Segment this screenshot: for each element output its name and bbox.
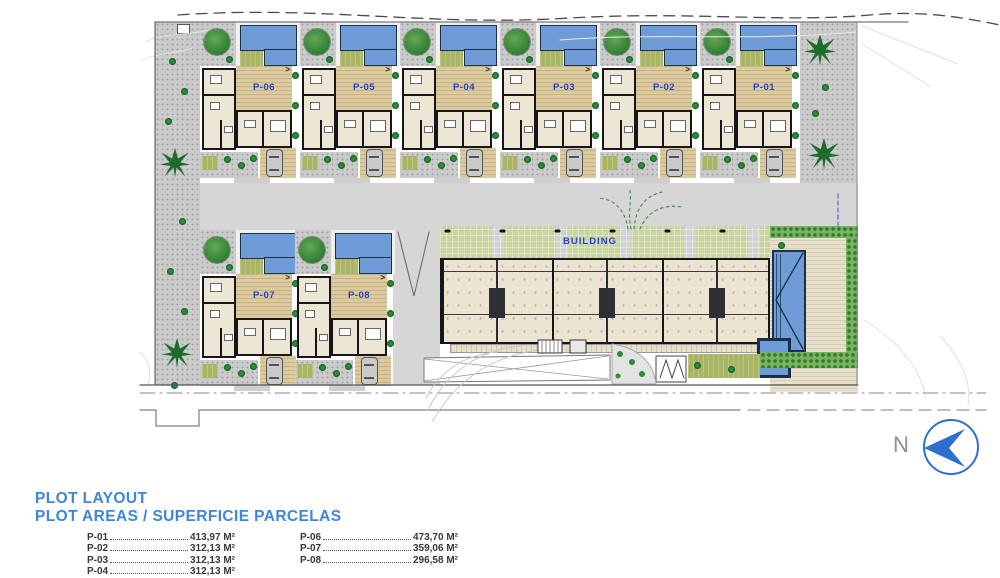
tree-icon: [204, 237, 230, 263]
furniture: [244, 328, 256, 336]
house-footprint: [702, 68, 736, 150]
interior-wall: [462, 112, 464, 146]
house-footprint: [402, 68, 436, 150]
plot-area: 312,13 M²: [190, 566, 235, 577]
car-rear-window: [369, 169, 379, 171]
lawn-patch: [540, 51, 563, 66]
house-bedroom-wing: [636, 110, 692, 148]
villa-back-garden: [500, 22, 536, 66]
plot-area: 473,70 M²: [413, 532, 458, 543]
bed: [670, 120, 686, 132]
shrub-icon: [387, 340, 394, 347]
shrub-icon: [392, 102, 399, 109]
shrub-icon: [624, 156, 631, 163]
shrub-icon: [738, 162, 745, 169]
car-icon: [666, 149, 683, 177]
shrub-icon: [319, 364, 326, 371]
lawn-patch: [402, 156, 418, 170]
side-shrub-column: [392, 66, 400, 152]
shrub-icon: [392, 132, 399, 139]
shrub-icon: [750, 155, 757, 162]
lawn-patch: [702, 156, 718, 170]
shrub-icon: [724, 156, 731, 163]
entrance-arrow-icon: >: [785, 65, 790, 74]
interior-wall: [220, 120, 222, 148]
leader-dots: [110, 573, 188, 574]
bed: [365, 328, 381, 340]
shrub-icon: [387, 280, 394, 287]
north-label: N: [893, 432, 909, 458]
car-rear-window: [669, 169, 679, 171]
shrub-icon: [392, 72, 399, 79]
legend-title: PLOT LAYOUT: [35, 490, 505, 508]
house-footprint: [602, 68, 636, 150]
entrance-walk: [434, 178, 470, 183]
villa-back-garden: [700, 22, 736, 66]
interior-wall: [620, 120, 622, 148]
villa-deck: P-07 >: [236, 274, 292, 318]
shrub-icon: [224, 364, 231, 371]
furniture: [224, 126, 233, 133]
side-shrub-column: [292, 66, 300, 152]
shrub-icon: [592, 72, 599, 79]
house-footprint: [202, 68, 236, 150]
villa-front-garden: [300, 152, 358, 178]
villa-deck: P-05 >: [336, 66, 392, 110]
legend-row: P-08296,58 M²: [300, 555, 458, 566]
car-icon: [366, 149, 383, 177]
lawn-patch: [302, 156, 318, 170]
shrub-icon: [726, 56, 733, 63]
interior-wall: [720, 120, 722, 148]
legend-row: P-04312,13 M²: [87, 566, 235, 577]
shrub-icon: [692, 102, 699, 109]
shrub-icon: [345, 363, 352, 370]
villa-pool: [340, 25, 397, 51]
interior-wall: [304, 94, 334, 96]
furniture: [724, 126, 733, 133]
plot-label: P-02: [636, 82, 692, 93]
villa-pool-lower: [664, 49, 697, 66]
car-windshield: [769, 156, 779, 158]
legend-column-1: P-01413,97 M² P-02312,13 M² P-03312,13 M…: [87, 532, 235, 578]
interior-wall: [204, 302, 234, 304]
villa-pool-lower: [364, 49, 397, 66]
villa-front-garden: [200, 152, 258, 178]
shrub-icon: [792, 72, 799, 79]
shrub-icon: [626, 56, 633, 63]
shrub-icon: [592, 132, 599, 139]
furniture: [710, 102, 720, 110]
bed: [370, 120, 386, 132]
interior-wall: [262, 320, 264, 354]
interior-wall: [762, 112, 764, 146]
tree-icon: [504, 29, 530, 55]
car-windshield: [569, 156, 579, 158]
furniture: [710, 75, 722, 84]
villa-pool: [740, 25, 797, 51]
villa-pool: [640, 25, 697, 51]
villa-plot: P-06 >: [200, 22, 300, 182]
plot-id: P-06: [300, 532, 321, 543]
villa-back-garden: [600, 22, 636, 66]
shrub-icon: [250, 155, 257, 162]
entrance-arrow-icon: >: [685, 65, 690, 74]
bed: [570, 120, 586, 132]
villa-front-garden: [400, 152, 458, 178]
furniture: [410, 75, 422, 84]
shrub-icon: [338, 162, 345, 169]
bed: [770, 120, 786, 132]
car-windshield: [364, 364, 374, 366]
shrub-icon: [292, 72, 299, 79]
shrub-icon: [692, 72, 699, 79]
car-windshield: [269, 156, 279, 158]
leader-dots: [323, 550, 411, 551]
leader-dots: [323, 562, 411, 563]
house-bedroom-wing: [736, 110, 792, 148]
interior-wall: [362, 112, 364, 146]
house-bedroom-wing: [536, 110, 592, 148]
interior-wall: [220, 328, 222, 356]
entrance-walk: [634, 178, 670, 183]
interior-wall: [262, 112, 264, 146]
shrub-icon: [226, 56, 233, 63]
interior-wall: [357, 320, 359, 354]
lawn-patch: [297, 364, 313, 378]
shrub-icon: [592, 102, 599, 109]
house-footprint: [297, 276, 331, 358]
villa-pool-lower: [264, 49, 297, 66]
plot-label: P-06: [236, 82, 292, 93]
furniture: [224, 334, 233, 341]
shrub-icon: [224, 156, 231, 163]
car-rear-window: [469, 169, 479, 171]
shrub-icon: [492, 132, 499, 139]
entrance-walk: [334, 178, 370, 183]
lawn-patch: [335, 259, 358, 274]
villa-pool-lower: [264, 257, 297, 274]
house-footprint: [302, 68, 336, 150]
plot-id: P-07: [300, 543, 321, 554]
interior-wall: [520, 120, 522, 148]
shrub-icon: [792, 102, 799, 109]
villa-deck: P-02 >: [636, 66, 692, 110]
furniture: [344, 120, 356, 128]
legend-row: P-06473,70 M²: [300, 532, 458, 543]
villa-deck: P-08 >: [331, 274, 387, 318]
shrub-icon: [550, 155, 557, 162]
car-rear-window: [569, 169, 579, 171]
lawn-patch: [502, 156, 518, 170]
villa-front-garden: [600, 152, 658, 178]
tree-icon: [704, 29, 730, 55]
furniture: [610, 102, 620, 110]
lawn-patch: [202, 156, 218, 170]
villa-pool-lower: [359, 257, 392, 274]
villa-front-garden: [200, 360, 258, 386]
shrub-icon: [638, 162, 645, 169]
site-plan-canvas: BUILDING: [0, 0, 1000, 578]
interior-wall: [404, 94, 434, 96]
entrance-arrow-icon: >: [585, 65, 590, 74]
car-icon: [266, 149, 283, 177]
interior-wall: [315, 328, 317, 356]
furniture: [544, 120, 556, 128]
villa-pool: [335, 233, 392, 259]
tree-icon: [299, 237, 325, 263]
villa-deck: P-04 >: [436, 66, 492, 110]
plot-label: P-07: [236, 290, 292, 301]
car-icon: [766, 149, 783, 177]
car-icon: [266, 357, 283, 385]
villa-pool: [240, 25, 297, 51]
house-footprint: [502, 68, 536, 150]
lawn-patch: [240, 51, 263, 66]
house-bedroom-wing: [436, 110, 492, 148]
side-shrub-column: [692, 66, 700, 152]
entrance-walk: [534, 178, 570, 183]
shrub-icon: [692, 132, 699, 139]
furniture: [510, 75, 522, 84]
plot-area: 312,13 M²: [190, 543, 235, 554]
shrub-icon: [524, 156, 531, 163]
furniture: [210, 102, 220, 110]
villa-pool: [540, 25, 597, 51]
villa-front-garden: [295, 360, 353, 386]
lawn-patch: [202, 364, 218, 378]
furniture: [310, 75, 322, 84]
furniture: [210, 75, 222, 84]
shrub-icon: [324, 156, 331, 163]
leader-dots: [110, 539, 188, 540]
interior-wall: [320, 120, 322, 148]
plot-label: P-08: [331, 290, 387, 301]
furniture: [339, 328, 351, 336]
shrub-icon: [292, 132, 299, 139]
furniture: [644, 120, 656, 128]
house-bedroom-wing: [236, 318, 292, 356]
villa-deck: P-01 >: [736, 66, 792, 110]
furniture: [305, 310, 315, 318]
villa-plot: P-05 >: [300, 22, 400, 182]
shrub-icon: [350, 155, 357, 162]
interior-wall: [704, 94, 734, 96]
lawn-patch: [602, 156, 618, 170]
villa-plot: P-03 >: [500, 22, 600, 182]
interior-wall: [420, 120, 422, 148]
plot-label: P-05: [336, 82, 392, 93]
side-shrub-column: [592, 66, 600, 152]
shrub-icon: [792, 132, 799, 139]
shrub-icon: [250, 363, 257, 370]
legend-row: P-07359,06 M²: [300, 543, 458, 554]
plot-id: P-01: [87, 532, 108, 543]
tree-icon: [604, 29, 630, 55]
legend-row: P-01413,97 M²: [87, 532, 235, 543]
leader-dots: [110, 562, 188, 563]
shrub-icon: [387, 310, 394, 317]
furniture: [624, 126, 633, 133]
villa-plot: P-04 >: [400, 22, 500, 182]
shrub-icon: [238, 162, 245, 169]
side-shrub-column: [792, 66, 800, 152]
furniture: [410, 102, 420, 110]
lawn-patch: [440, 51, 463, 66]
villa-front-garden: [500, 152, 558, 178]
bed: [270, 328, 286, 340]
house-bedroom-wing: [331, 318, 387, 356]
villa-plot: P-08 >: [295, 230, 395, 390]
villa-back-garden: [300, 22, 336, 66]
bed: [470, 120, 486, 132]
house-footprint: [202, 276, 236, 358]
interior-wall: [299, 302, 329, 304]
villa-plot: P-02 >: [600, 22, 700, 182]
lawn-patch: [640, 51, 663, 66]
furniture: [610, 75, 622, 84]
plot-id: P-08: [300, 555, 321, 566]
car-windshield: [369, 156, 379, 158]
villa-back-garden: [400, 22, 436, 66]
villa-front-garden: [700, 152, 758, 178]
plot-area: 296,58 M²: [413, 555, 458, 566]
plot-id: P-04: [87, 566, 108, 577]
shrub-icon: [438, 162, 445, 169]
shrub-icon: [450, 155, 457, 162]
car-rear-window: [269, 377, 279, 379]
car-windshield: [669, 156, 679, 158]
house-bedroom-wing: [236, 110, 292, 148]
furniture: [324, 126, 333, 133]
furniture: [424, 126, 433, 133]
legend-subtitle: PLOT AREAS / SUPERFICIE PARCELAS: [35, 508, 505, 526]
villa-deck: P-06 >: [236, 66, 292, 110]
leader-dots: [323, 539, 411, 540]
side-shrub-column: [387, 274, 395, 360]
legend-row: P-02312,13 M²: [87, 543, 235, 554]
shrub-icon: [292, 102, 299, 109]
villa-back-garden: [200, 230, 236, 274]
car-icon: [361, 357, 378, 385]
entrance-walk: [234, 178, 270, 183]
entrance-walk: [234, 386, 270, 391]
furniture: [319, 334, 328, 341]
car-rear-window: [269, 169, 279, 171]
shrub-icon: [650, 155, 657, 162]
entrance-arrow-icon: >: [285, 273, 290, 282]
shrub-icon: [326, 56, 333, 63]
furniture: [524, 126, 533, 133]
car-rear-window: [769, 169, 779, 171]
plot-area: 413,97 M²: [190, 532, 235, 543]
lawn-patch: [240, 259, 263, 274]
interior-wall: [604, 94, 634, 96]
villa-pool-lower: [464, 49, 497, 66]
shrub-icon: [538, 162, 545, 169]
lawn-patch: [340, 51, 363, 66]
entrance-walk: [329, 386, 365, 391]
plot-label: P-04: [436, 82, 492, 93]
shrub-icon: [492, 102, 499, 109]
villa-pool: [440, 25, 497, 51]
tree-icon: [404, 29, 430, 55]
furniture: [444, 120, 456, 128]
interior-wall: [662, 112, 664, 146]
shrub-icon: [333, 370, 340, 377]
shrub-icon: [424, 156, 431, 163]
entrance-arrow-icon: >: [385, 65, 390, 74]
furniture: [210, 283, 222, 292]
villa-plot: P-01 >: [700, 22, 800, 182]
villa-pool-lower: [764, 49, 797, 66]
car-icon: [566, 149, 583, 177]
plot-id: P-02: [87, 543, 108, 554]
legend-row: P-03312,13 M²: [87, 555, 235, 566]
plot-area: 359,06 M²: [413, 543, 458, 554]
entrance-arrow-icon: >: [380, 273, 385, 282]
villa-pool: [240, 233, 297, 259]
shrub-icon: [492, 72, 499, 79]
entrance-arrow-icon: >: [485, 65, 490, 74]
interior-wall: [204, 94, 234, 96]
plot-label: P-01: [736, 82, 792, 93]
villa-pool-lower: [564, 49, 597, 66]
furniture: [305, 283, 317, 292]
villa-back-garden: [200, 22, 236, 66]
entrance-arrow-icon: >: [285, 65, 290, 74]
plot-area: 312,13 M²: [190, 555, 235, 566]
car-windshield: [469, 156, 479, 158]
plot-label: P-03: [536, 82, 592, 93]
entrance-walk: [734, 178, 770, 183]
legend: PLOT LAYOUT PLOT AREAS / SUPERFICIE PARC…: [35, 490, 505, 578]
legend-column-2: P-06473,70 M² P-07359,06 M² P-08296,58 M…: [300, 532, 458, 566]
tree-icon: [204, 29, 230, 55]
car-windshield: [269, 364, 279, 366]
villa-back-garden: [295, 230, 331, 274]
interior-wall: [504, 94, 534, 96]
villa-deck: P-03 >: [536, 66, 592, 110]
villa-plot: P-07 >: [200, 230, 300, 390]
furniture: [310, 102, 320, 110]
car-rear-window: [364, 377, 374, 379]
bed: [270, 120, 286, 132]
shrub-icon: [426, 56, 433, 63]
car-icon: [466, 149, 483, 177]
shrub-icon: [321, 264, 328, 271]
furniture: [210, 310, 220, 318]
furniture: [744, 120, 756, 128]
shrub-icon: [526, 56, 533, 63]
side-shrub-column: [492, 66, 500, 152]
plot-id: P-03: [87, 555, 108, 566]
shrub-icon: [238, 370, 245, 377]
lawn-patch: [740, 51, 763, 66]
furniture: [510, 102, 520, 110]
furniture: [244, 120, 256, 128]
house-bedroom-wing: [336, 110, 392, 148]
tree-icon: [304, 29, 330, 55]
shrub-icon: [226, 264, 233, 271]
leader-dots: [110, 550, 188, 551]
interior-wall: [562, 112, 564, 146]
